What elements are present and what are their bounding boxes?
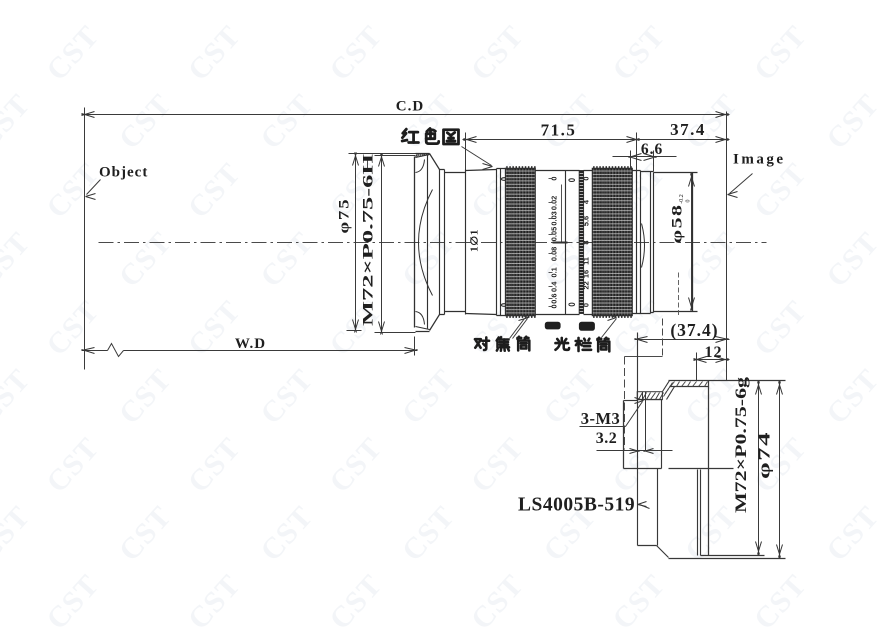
svg-text:-0.2: -0.2 — [679, 194, 685, 204]
svg-text:12: 12 — [705, 344, 723, 361]
svg-text:5.6: 5.6 — [581, 216, 590, 226]
svg-text:0: 0 — [686, 200, 692, 203]
svg-text:φ58: φ58 — [670, 204, 686, 244]
svg-text:Object: Object — [99, 165, 148, 181]
svg-text:22: 22 — [581, 281, 590, 289]
svg-text:0: 0 — [581, 177, 590, 181]
svg-text:0.05: 0.05 — [550, 227, 559, 241]
svg-text:37.4: 37.4 — [670, 120, 706, 139]
svg-text:1∅1: 1∅1 — [469, 229, 480, 252]
svg-text:8: 8 — [581, 240, 590, 244]
svg-text:M72×P0.75-6H: M72×P0.75-6H — [360, 154, 377, 326]
svg-text:(37.4): (37.4) — [670, 320, 718, 340]
svg-text:71.5: 71.5 — [541, 121, 577, 140]
svg-text:3-M3: 3-M3 — [581, 409, 621, 428]
svg-text:φ74: φ74 — [755, 431, 774, 479]
svg-text:16: 16 — [581, 270, 590, 278]
svg-text:LS4005B-519: LS4005B-519 — [518, 495, 635, 516]
svg-text:Image: Image — [733, 152, 786, 168]
svg-text:M72×P0.75-6g: M72×P0.75-6g — [732, 377, 750, 513]
svg-text:0: 0 — [581, 303, 590, 307]
svg-text:W.D: W.D — [235, 336, 266, 352]
svg-text:3.2: 3.2 — [596, 430, 618, 447]
svg-text:11: 11 — [581, 257, 590, 265]
svg-text:6.6: 6.6 — [641, 141, 663, 158]
svg-text:C.D: C.D — [396, 99, 424, 115]
svg-text:φ75: φ75 — [337, 198, 353, 234]
